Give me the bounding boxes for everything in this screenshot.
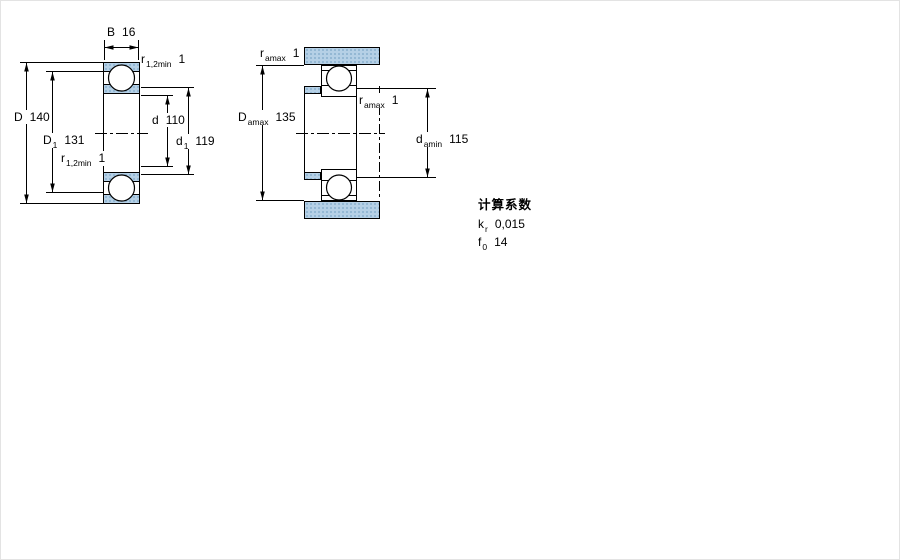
dim-symbol: D [43, 133, 52, 147]
bearing-ball [109, 65, 135, 91]
dim-value: 119 [195, 134, 214, 148]
calculation-factors-title: 计算系数 [478, 198, 532, 212]
dim-label-D1: D1131 [41, 133, 86, 148]
factor-f0: f014 [478, 235, 507, 250]
dim-subscript: 1,2min [146, 59, 172, 69]
dim-value: 110 [166, 113, 185, 127]
dim-subscript: 1 [53, 140, 58, 150]
dim-symbol: r [61, 151, 65, 165]
dim-symbol: r [359, 93, 363, 107]
bearing-ball [109, 175, 135, 201]
dim-symbol: D [238, 110, 247, 124]
dim-value: 1 [99, 151, 106, 165]
dim-label-d: d110 [150, 113, 187, 127]
bearing-ball [327, 175, 352, 200]
dim-value: 140 [30, 110, 50, 124]
dim-symbol: r [260, 46, 264, 60]
factor-value: 0,015 [495, 217, 525, 231]
dim-value: 115 [449, 132, 468, 146]
factor-subscript: r [485, 224, 488, 234]
dimension-arrowheads [24, 45, 430, 203]
dim-label-ramax-top: ramax1 [260, 46, 299, 61]
factor-symbol: k [478, 217, 484, 231]
bearing-ball [327, 66, 352, 91]
drawing-linework [0, 0, 900, 560]
dim-label-damin: damin115 [414, 132, 470, 147]
dim-value: 1 [392, 93, 399, 107]
dim-symbol: r [141, 52, 145, 66]
dim-label-d1: d1119 [174, 134, 217, 149]
dim-subscript: 1,2min [66, 158, 92, 168]
dim-symbol: d [152, 113, 159, 127]
dim-symbol: D [14, 110, 23, 124]
factor-symbol: f [478, 235, 481, 249]
dim-subscript: amin [424, 139, 442, 149]
dim-label-ramax-mid: ramax1 [357, 93, 400, 108]
dim-label-B: B16 [107, 25, 135, 39]
dim-label-D: D140 [12, 110, 52, 124]
dim-value: 135 [275, 110, 295, 124]
dim-symbol: B [107, 25, 115, 39]
bearing-drawing-page: B16 r1,2min1 D140 D1131 d110 d1119 r1,2m… [0, 0, 900, 560]
dim-label-Damax: Damax135 [236, 110, 298, 125]
dim-label-r12min-bottom: r1,2min1 [59, 151, 107, 166]
dim-subscript: amax [265, 53, 286, 63]
dim-value: 16 [122, 25, 135, 39]
dim-value: 1 [179, 52, 186, 66]
dim-symbol: d [176, 134, 183, 148]
dim-subscript: amax [248, 117, 269, 127]
dim-subscript: 1 [184, 141, 189, 151]
dim-subscript: amax [364, 100, 385, 110]
factor-subscript: 0 [482, 242, 487, 252]
dim-value: 131 [64, 133, 84, 147]
dim-value: 1 [293, 46, 300, 60]
factor-kr: kr0,015 [478, 217, 525, 232]
dim-symbol: d [416, 132, 423, 146]
factor-value: 14 [494, 235, 507, 249]
dim-label-r12min-top: r1,2min1 [141, 52, 185, 67]
